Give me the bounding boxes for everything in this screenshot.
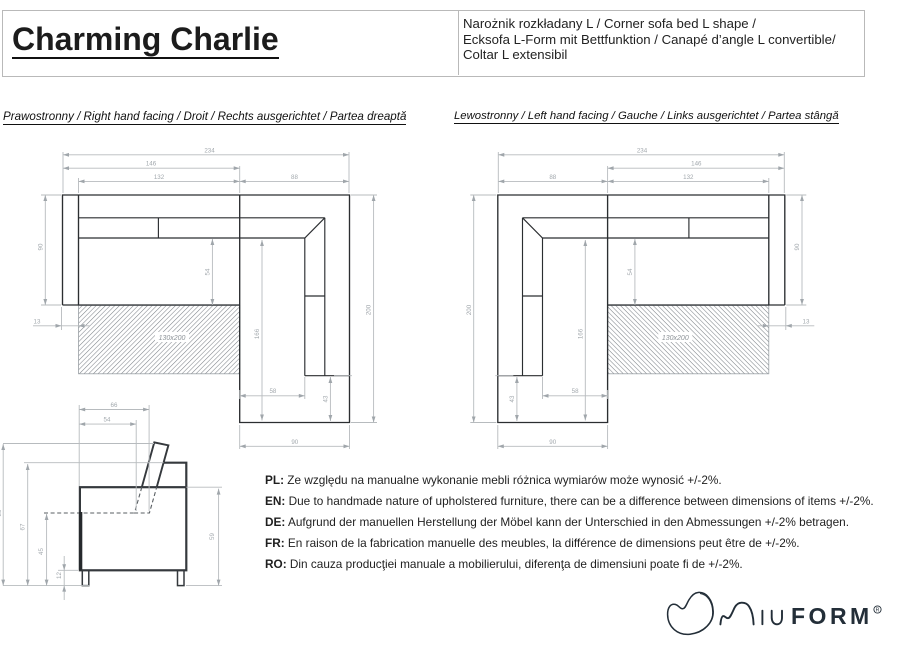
svg-text:234: 234 — [637, 147, 648, 154]
svg-text:DE: Aufgrund der manuellen Her: DE: Aufgrund der manuellen Herstellung d… — [265, 515, 849, 529]
svg-text:12: 12 — [56, 572, 63, 579]
svg-text:54: 54 — [104, 417, 111, 424]
svg-text:88: 88 — [549, 174, 556, 181]
svg-text:130x200: 130x200 — [159, 335, 186, 342]
svg-text:66: 66 — [111, 402, 118, 409]
svg-text:RO: Din cauza producţiei manua: RO: Din cauza producţiei manuale a mobil… — [265, 557, 743, 571]
svg-text:90: 90 — [38, 243, 45, 250]
svg-text:13: 13 — [803, 319, 810, 326]
svg-text:13: 13 — [34, 319, 41, 326]
svg-text:132: 132 — [683, 174, 694, 181]
svg-text:85: 85 — [0, 509, 3, 516]
svg-text:90: 90 — [794, 243, 801, 250]
svg-text:54: 54 — [627, 268, 634, 275]
svg-text:59: 59 — [209, 533, 216, 540]
svg-text:146: 146 — [691, 161, 702, 168]
svg-text:43: 43 — [323, 395, 330, 402]
svg-text:45: 45 — [38, 548, 45, 555]
svg-text:FR: En raison de la fabricatio: FR: En raison de la fabrication manuelle… — [265, 536, 800, 550]
svg-text:234: 234 — [204, 147, 215, 154]
svg-text:R: R — [876, 608, 880, 614]
svg-text:166: 166 — [254, 328, 261, 339]
svg-text:90: 90 — [549, 439, 556, 446]
svg-text:88: 88 — [291, 174, 298, 181]
svg-text:130x200: 130x200 — [662, 335, 689, 342]
svg-text:43: 43 — [509, 395, 516, 402]
svg-text:132: 132 — [154, 174, 165, 181]
svg-text:146: 146 — [146, 161, 157, 168]
svg-text:200: 200 — [366, 304, 373, 315]
svg-text:58: 58 — [269, 388, 276, 395]
svg-text:200: 200 — [466, 304, 473, 315]
svg-text:PL: Ze względu na manualne wyk: PL: Ze względu na manualne wykonanie meb… — [265, 473, 722, 487]
svg-text:FORM: FORM — [791, 603, 873, 629]
svg-text:166: 166 — [578, 328, 585, 339]
svg-text:58: 58 — [572, 388, 579, 395]
svg-text:90: 90 — [291, 439, 298, 446]
svg-text:54: 54 — [205, 268, 212, 275]
svg-text:67: 67 — [20, 523, 27, 530]
svg-text:EN: Due to handmade nature of: EN: Due to handmade nature of upholstere… — [265, 494, 874, 508]
